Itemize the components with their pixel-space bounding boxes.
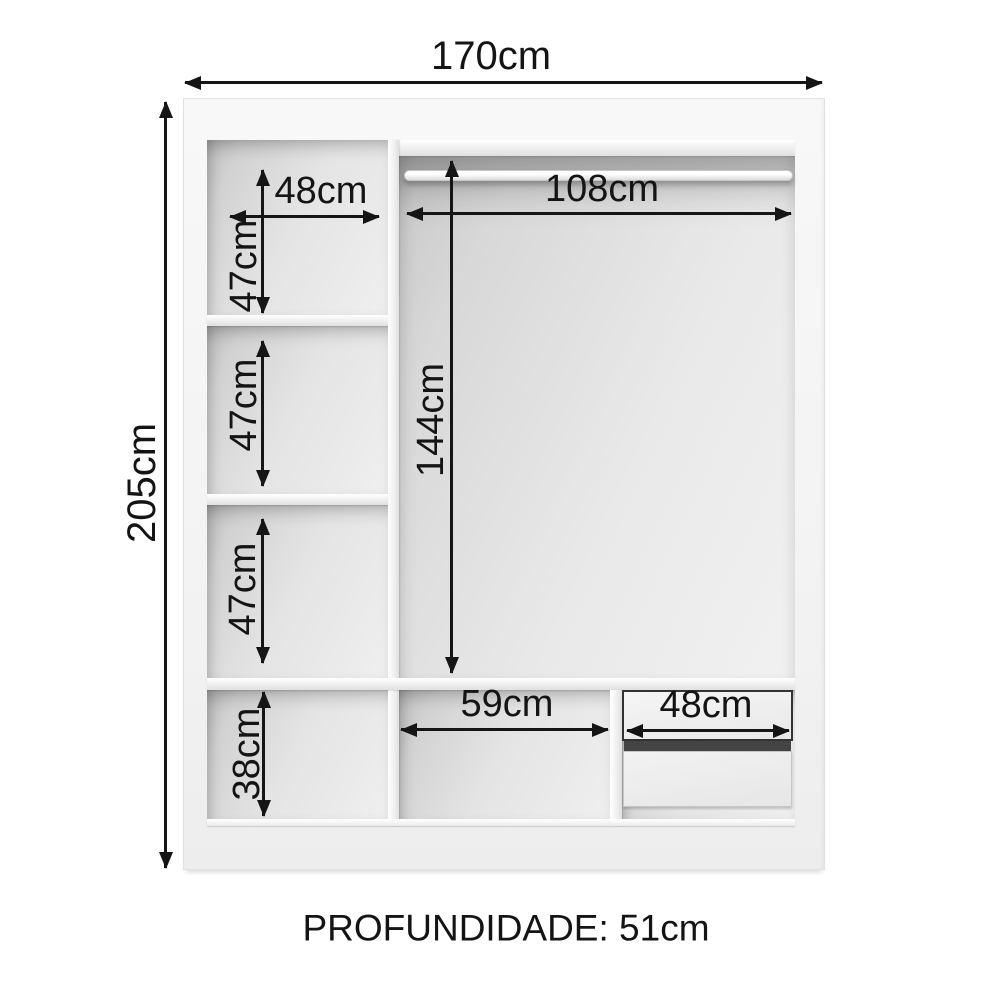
vertical-divider-drawer [610, 690, 622, 826]
label-hanging-height: 144cm [412, 363, 450, 477]
dim-arrow-rod-width [407, 212, 791, 215]
label-shelf1-height: 47cm [225, 220, 263, 313]
label-bottom-left-height: 38cm [228, 708, 266, 801]
shelf-2 [207, 494, 388, 505]
wardrobe-dimension-diagram: 170cm 205cm 48cm 47cm 47cm 47cm 38cm 108… [0, 0, 1000, 1000]
label-rod-width: 108cm [545, 170, 659, 208]
label-drawer-width: 48cm [660, 686, 753, 724]
drawer-bottom [623, 751, 792, 807]
label-top-left-width: 48cm [275, 172, 368, 210]
dim-arrow-drawer-width [627, 729, 789, 732]
label-shelf3-height: 47cm [224, 543, 262, 636]
dim-arrow-total-width [185, 81, 822, 84]
dim-arrow-bottom-middle-width [401, 728, 608, 731]
top-panel [399, 140, 795, 156]
cabinet-floor [207, 819, 795, 826]
dim-arrow-top-left-width [230, 215, 379, 218]
label-total-height: 205cm [122, 423, 162, 543]
vertical-divider-main [388, 140, 399, 826]
depth-caption: PROFUNDIDADE: 51cm [302, 910, 709, 947]
dim-arrow-total-height [164, 102, 167, 868]
shelf-1 [207, 315, 388, 326]
hanging-compartment [399, 140, 795, 678]
label-bottom-middle-width: 59cm [461, 685, 554, 723]
drawer-gap [624, 741, 791, 751]
label-total-width: 170cm [431, 36, 551, 76]
label-shelf2-height: 47cm [225, 359, 263, 452]
